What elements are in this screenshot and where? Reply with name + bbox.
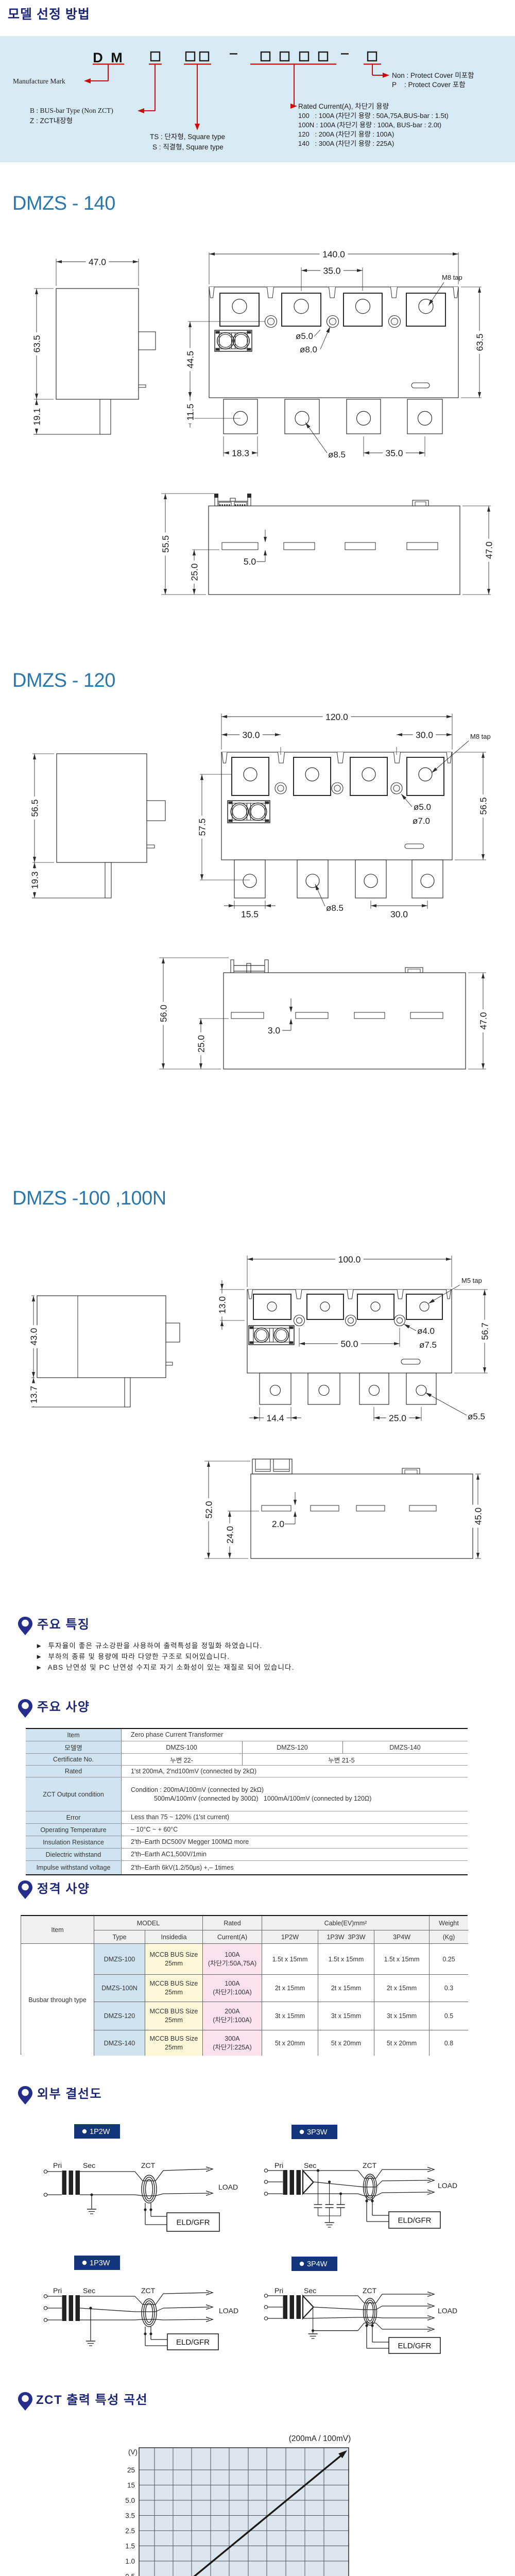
svg-text:M8 tap: M8 tap [470,733,491,740]
svg-text:3P3W: 3P3W [307,2128,328,2137]
svg-text:25: 25 [127,2466,135,2474]
svg-text:1.0: 1.0 [125,2557,135,2565]
svg-text:47.0: 47.0 [484,541,494,559]
svg-text:ø5.0: ø5.0 [296,331,313,341]
svg-text:1P2W: 1P2W [90,2128,110,2136]
svg-text:Non : Protect Cover 미포함: Non : Protect Cover 미포함 [392,72,474,79]
svg-text:120 : 200A (차단기 용량 : 100A): 120 : 200A (차단기 용량 : 100A) [298,130,394,138]
svg-text:19.3: 19.3 [29,871,40,889]
svg-text:15.5: 15.5 [241,909,259,919]
svg-text:100.0: 100.0 [338,1254,361,1264]
svg-text:24.0: 24.0 [225,1526,235,1544]
svg-text:ø4.0: ø4.0 [417,1326,435,1336]
svg-text:63.5: 63.5 [31,335,42,352]
svg-text:100 : 100A (차단기 용량 : 50A,75A: 100 : 100A (차단기 용량 : 50A,75A,BUS-bar : 1… [298,112,449,120]
svg-text:52.0: 52.0 [203,1501,214,1518]
svg-text:ZCT: ZCT [363,2161,377,2170]
svg-text:5.0: 5.0 [244,556,256,567]
svg-text:ZCT: ZCT [363,2286,377,2295]
svg-text:Z : ZCT내장형: Z : ZCT내장형 [30,117,73,125]
svg-text:30.0: 30.0 [390,909,408,919]
svg-text:(V): (V) [128,2448,138,2456]
svg-text:Sec: Sec [304,2161,316,2170]
svg-text:56.7: 56.7 [479,1323,490,1340]
svg-text:44.5: 44.5 [185,351,195,368]
svg-text:ELD/GFR: ELD/GFR [176,2218,210,2227]
svg-text:ø5.0: ø5.0 [414,802,431,812]
svg-text:1.5: 1.5 [125,2543,135,2550]
svg-text:63.5: 63.5 [474,333,485,351]
svg-text:ELD/GFR: ELD/GFR [176,2338,210,2347]
svg-text:47.0: 47.0 [89,257,106,267]
svg-text:Pri: Pri [274,2161,283,2170]
svg-text:ELD/GFR: ELD/GFR [398,2342,431,2350]
svg-text:Pri: Pri [53,2161,62,2170]
svg-text:D M: D M [93,50,125,65]
svg-text:ø7.0: ø7.0 [413,816,430,826]
svg-text:2.0: 2.0 [272,1519,285,1529]
svg-text:1P3W: 1P3W [90,2259,110,2267]
svg-text:ø7.5: ø7.5 [419,1340,437,1350]
svg-text:LOAD: LOAD [219,2307,238,2315]
svg-text:ø8.0: ø8.0 [300,345,317,354]
svg-text:47.0: 47.0 [478,1012,488,1029]
svg-text:19.1: 19.1 [31,408,42,426]
svg-text:120.0: 120.0 [325,711,348,722]
svg-text:25.0: 25.0 [189,563,199,581]
svg-text:Rated Current(A), 차단기 용량: Rated Current(A), 차단기 용량 [298,103,389,110]
svg-text:140 : 300A (차단기 용량 : 225A): 140 : 300A (차단기 용량 : 225A) [298,140,394,147]
svg-text:B : BUS-bar Type (Non ZCT): B : BUS-bar Type (Non ZCT) [30,107,113,114]
svg-text:56.5: 56.5 [478,797,488,815]
svg-text:30.0: 30.0 [416,730,433,740]
svg-text:Pri: Pri [274,2286,283,2295]
svg-text:100N : 100A (차단기 용량 : 100A, BU: 100N : 100A (차단기 용량 : 100A, BUS-bar : 2.… [298,121,441,129]
svg-text:35.0: 35.0 [323,265,340,276]
svg-text:ø8.5: ø8.5 [328,450,346,460]
svg-text:Sec: Sec [83,2161,95,2170]
svg-text:50.0: 50.0 [340,1338,358,1349]
svg-text:30.0: 30.0 [242,730,260,740]
svg-text:0.5: 0.5 [125,2573,135,2576]
svg-text:ZCT: ZCT [141,2161,156,2170]
svg-text:11.5: 11.5 [185,404,195,421]
svg-text:14.4: 14.4 [266,1413,284,1423]
svg-text:ZCT: ZCT [141,2286,156,2295]
svg-text:P : Protect Cover 포함: P : Protect Cover 포함 [392,81,466,89]
svg-text:55.5: 55.5 [160,535,170,553]
svg-text:15: 15 [127,2482,135,2489]
svg-text:25.0: 25.0 [196,1035,206,1053]
svg-text:M8 tap: M8 tap [442,274,462,281]
svg-text:Sec: Sec [83,2286,95,2295]
svg-text:LOAD: LOAD [438,2307,457,2315]
svg-text:43.0: 43.0 [28,1328,39,1345]
svg-text:13.7: 13.7 [28,1386,39,1403]
svg-text:56.5: 56.5 [29,799,40,817]
svg-text:LOAD: LOAD [438,2181,457,2190]
svg-text:3.5: 3.5 [125,2512,135,2520]
svg-text:M5 tap: M5 tap [461,1277,482,1284]
svg-text:18.3: 18.3 [232,448,249,458]
svg-text:3.0: 3.0 [268,1025,281,1036]
svg-text:TS : 단자형, Square type: TS : 단자형, Square type [150,133,225,141]
svg-text:2.5: 2.5 [125,2527,135,2535]
svg-text:3P4W: 3P4W [307,2260,328,2268]
svg-text:ELD/GFR: ELD/GFR [398,2216,431,2225]
svg-text:(200mA / 100mV): (200mA / 100mV) [289,2434,351,2443]
svg-text:LOAD: LOAD [218,2183,238,2191]
svg-text:5.0: 5.0 [125,2497,135,2504]
svg-text:S : 직결형, Square type: S : 직결형, Square type [152,143,224,151]
svg-text:Pri: Pri [53,2286,62,2295]
svg-text:140.0: 140.0 [322,249,345,259]
svg-text:ø5.5: ø5.5 [468,1412,485,1421]
svg-text:57.5: 57.5 [197,818,207,836]
svg-text:25.0: 25.0 [389,1413,406,1423]
svg-text:ø8.5: ø8.5 [326,903,344,913]
svg-text:56.0: 56.0 [158,1005,168,1022]
svg-text:Sec: Sec [304,2286,316,2295]
svg-text:35.0: 35.0 [385,448,403,458]
svg-text:Manufacture Mark: Manufacture Mark [13,77,65,85]
svg-text:45.0: 45.0 [473,1507,483,1525]
svg-text:13.0: 13.0 [217,1296,227,1314]
